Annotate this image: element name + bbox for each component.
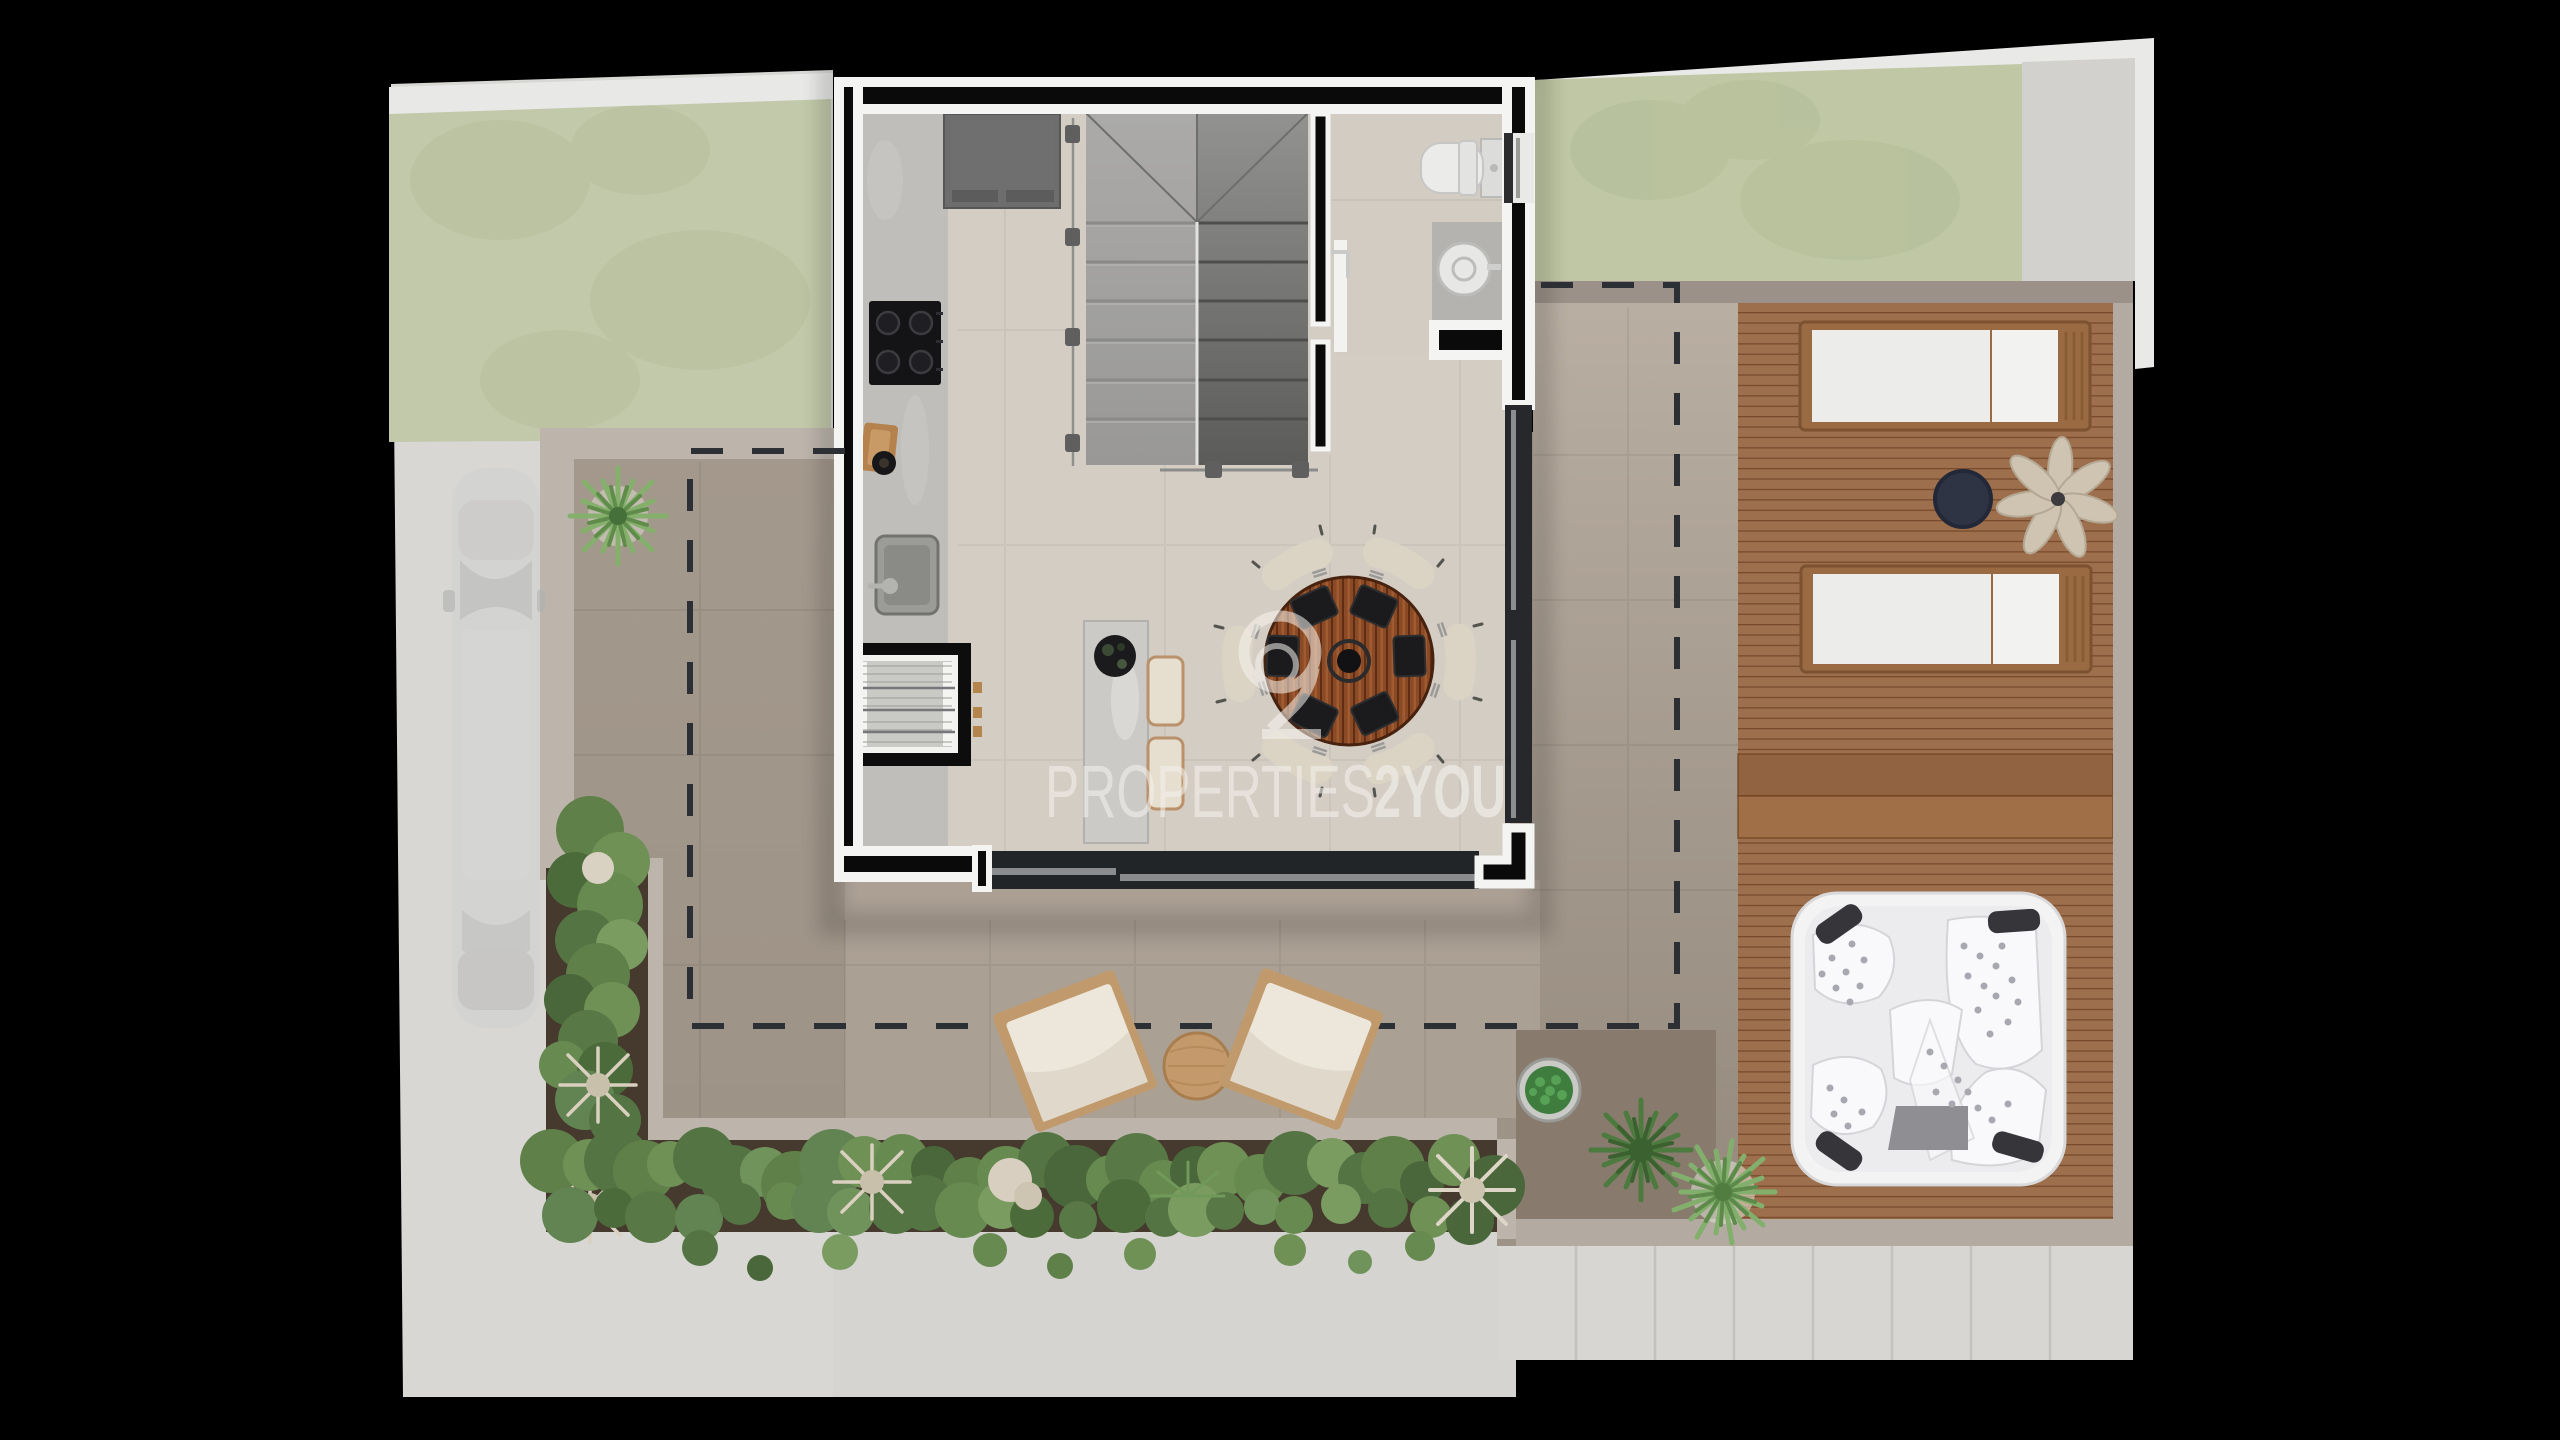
svg-text:PROPERTIES: PROPERTIES <box>1045 750 1375 833</box>
svg-text:2YOU: 2YOU <box>1374 750 1506 833</box>
